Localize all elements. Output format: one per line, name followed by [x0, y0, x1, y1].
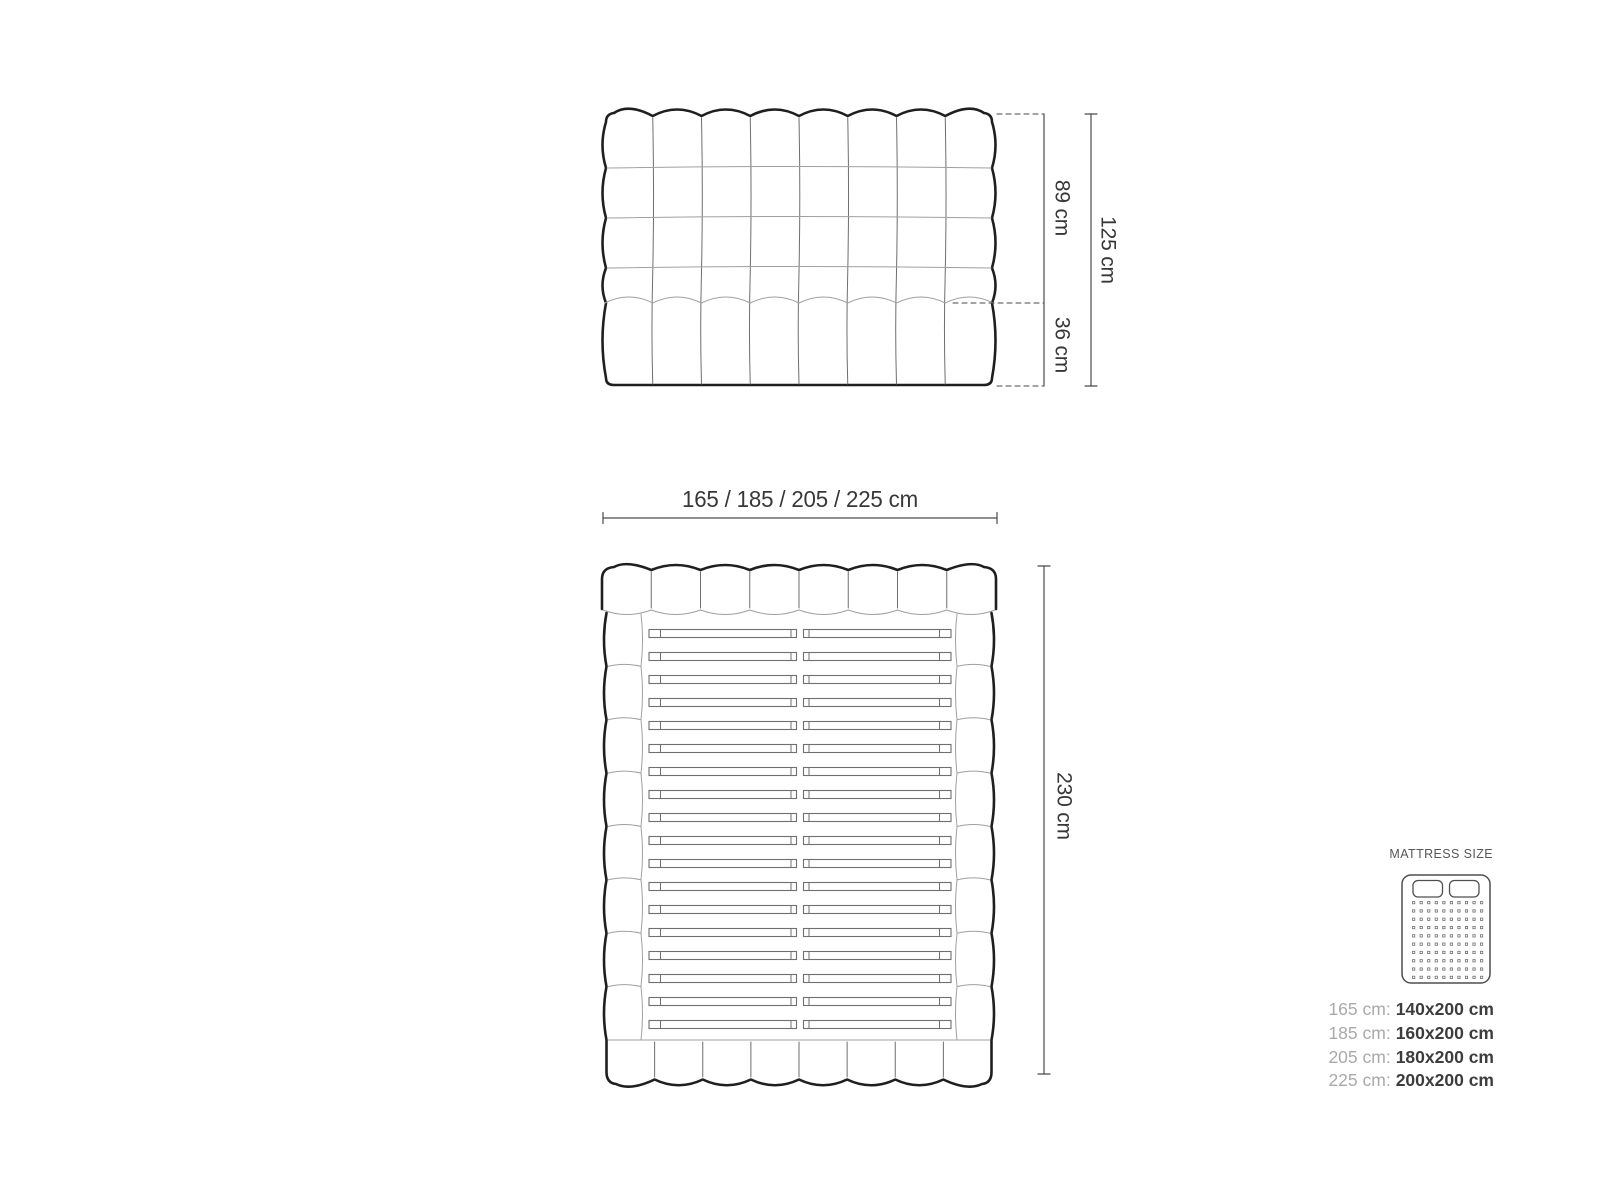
bed-top-view: [602, 564, 996, 1087]
dim-label-length: 230 cm: [1053, 772, 1076, 840]
size-value: 200x200 cm: [1396, 1069, 1494, 1093]
legend-row: 225 cm: 200x200 cm: [1328, 1069, 1494, 1093]
dim-label-width: 165 / 185 / 205 / 225 cm: [682, 486, 918, 512]
size-value: 180x200 cm: [1396, 1046, 1494, 1070]
legend-row: 205 cm: 180x200 cm: [1328, 1046, 1494, 1070]
size-value: 160x200 cm: [1396, 1022, 1494, 1046]
mattress-size-legend: MATTRESS SIZE 165 cm: 140x200 cm 185 cm:…: [1330, 846, 1494, 1093]
bed-dimension-diagram: 89 cm 36 cm 125 cm 165 / 185 / 205 / 225…: [0, 0, 1600, 1200]
legend-title: MATTRESS SIZE: [1389, 846, 1494, 862]
dim-label-total-height: 125 cm: [1097, 216, 1120, 284]
dim-label-lower-height: 36 cm: [1051, 317, 1074, 373]
dim-label-upper-height: 89 cm: [1051, 180, 1074, 236]
legend-rows: 165 cm: 140x200 cm 185 cm: 160x200 cm 20…: [1328, 998, 1494, 1093]
size-prefix: 165 cm:: [1328, 998, 1390, 1022]
headboard-front-view: [603, 109, 996, 385]
size-value: 140x200 cm: [1396, 998, 1494, 1022]
size-prefix: 225 cm:: [1328, 1069, 1390, 1093]
legend-row: 165 cm: 140x200 cm: [1328, 998, 1494, 1022]
size-prefix: 185 cm:: [1328, 1022, 1390, 1046]
legend-row: 185 cm: 160x200 cm: [1328, 1022, 1494, 1046]
mattress-icon: [1398, 873, 1494, 985]
size-prefix: 205 cm:: [1328, 1046, 1390, 1070]
